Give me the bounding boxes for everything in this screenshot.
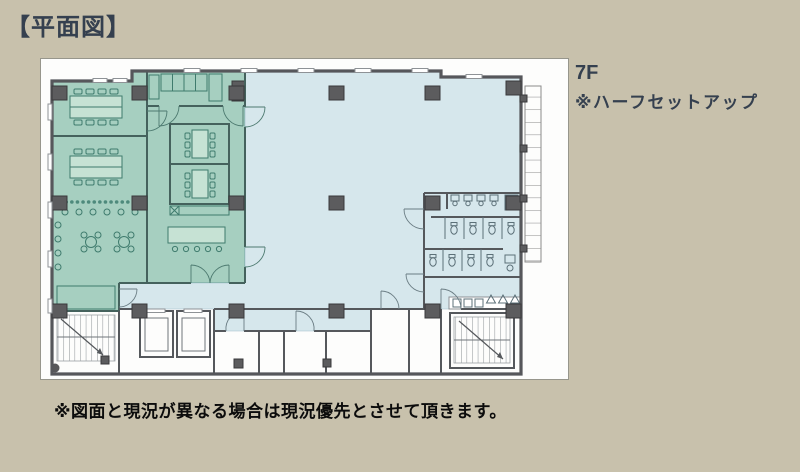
stairs-right-icon [450,313,514,368]
shaft-box [101,356,109,364]
floor-plan-panel [40,58,569,380]
balcony-ladder [520,86,541,262]
setup-note-label: ※ハーフセットアップ [575,88,759,113]
shaft-box [234,359,243,368]
footer-note: ※図面と現況が異なる場合は現況優先とさせて頂きます。 [54,397,507,422]
floor-label: 7F [575,62,598,85]
floor-plan-image [41,59,568,379]
page: 【平面図】 [0,0,800,472]
shaft-box [323,359,331,367]
page-title: 【平面図】 [6,7,131,42]
elevator-bank [140,309,210,357]
